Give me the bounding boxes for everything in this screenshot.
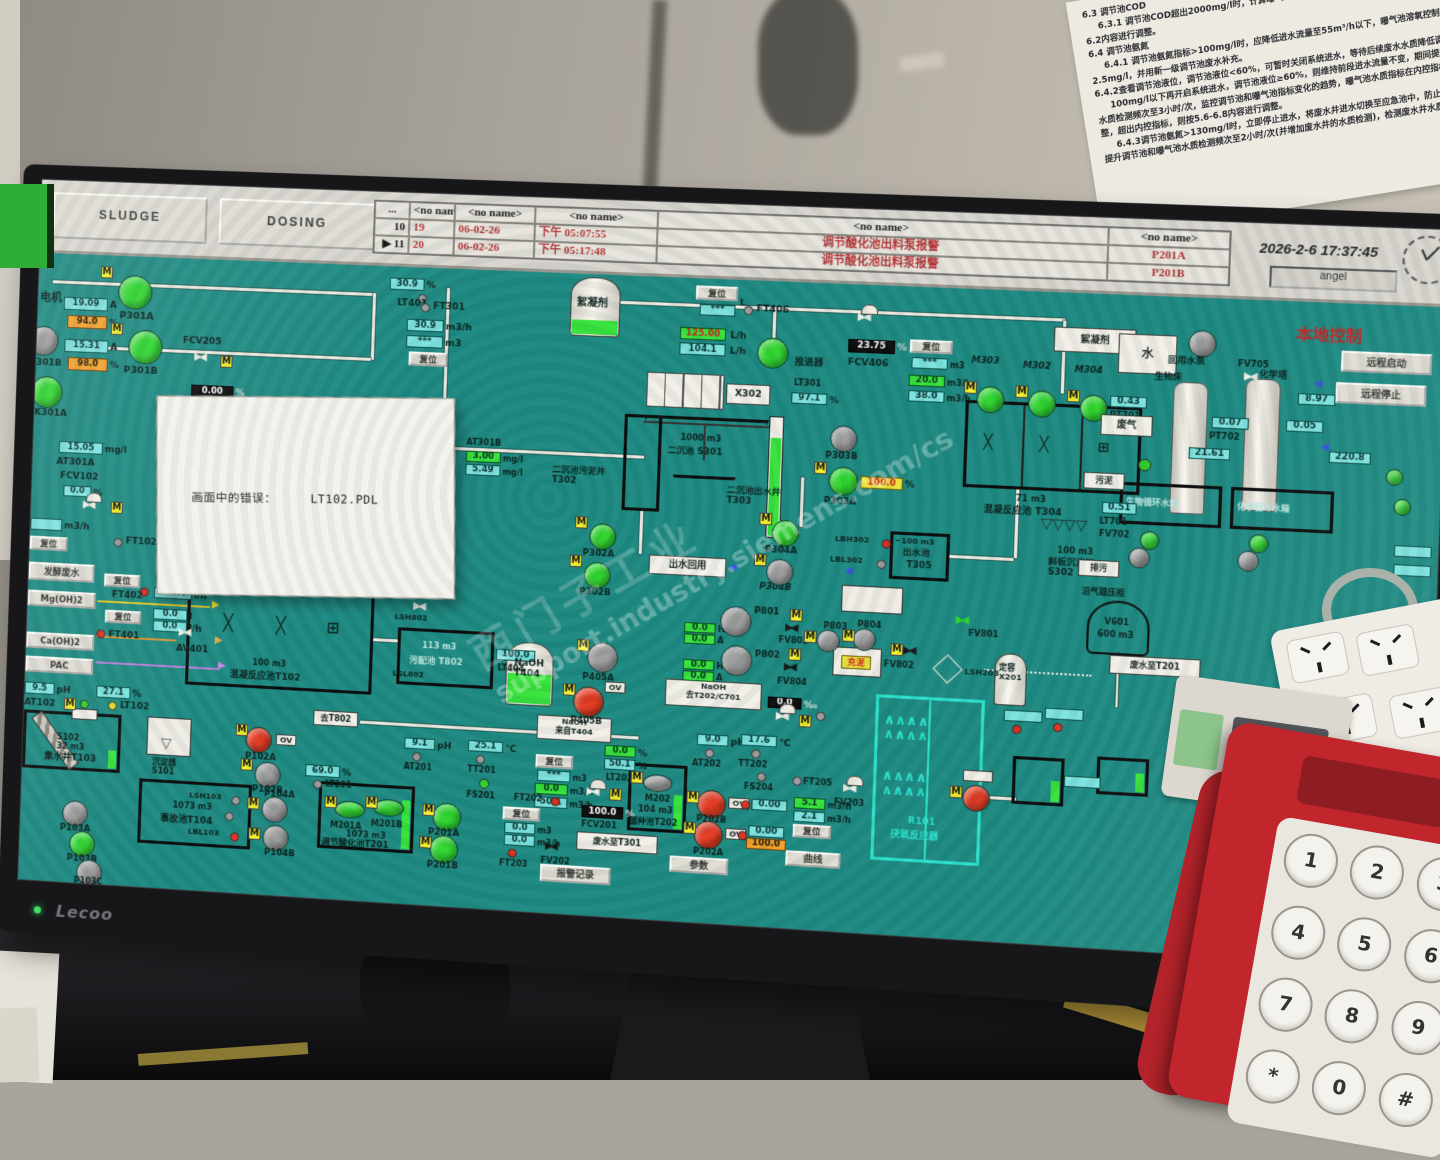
lbl-FV705: FV705: [1238, 359, 1269, 370]
lbl-%: %: [905, 480, 915, 491]
lbl-A: A: [717, 636, 724, 646]
vbox-19.09: 19.09: [64, 297, 108, 312]
sludge-label: 污泥: [1083, 472, 1125, 491]
dot: [816, 711, 826, 721]
pump-reuse-water[interactable]: [1188, 330, 1217, 358]
vbox-2.1: 2.1: [793, 810, 825, 823]
lbl-LT201: LT201: [325, 779, 352, 790]
vbox-97.1: 97.1: [791, 392, 827, 405]
lbl-%: %: [897, 343, 907, 354]
alarm-cell[interactable]: 06-02-26: [453, 238, 534, 258]
reset-button[interactable]: 复位: [104, 573, 140, 588]
arr-▶: ▶: [214, 636, 222, 646]
valve-fv804[interactable]: ▶◀: [784, 662, 794, 673]
lbl-K301A: K301A: [34, 408, 67, 420]
lbl-AT301A: AT301A: [56, 457, 94, 469]
mtag[interactable]: M: [64, 698, 76, 711]
alarm-table[interactable]: ...<no nam<no name><no name><no name><no…: [372, 200, 1231, 287]
mtag[interactable]: M: [248, 827, 261, 840]
vlv[interactable]: ▶◀: [776, 711, 786, 722]
mtag[interactable]: M: [236, 724, 249, 737]
pump-p301b[interactable]: [128, 329, 163, 365]
box-充泥: 充泥: [841, 655, 871, 670]
dot: [792, 776, 802, 786]
sludge-button[interactable]: SLUDGE: [52, 192, 208, 244]
ferment-wastewater-label[interactable]: 发酵废水: [28, 562, 94, 583]
valve-fv803[interactable]: ▶◀: [785, 623, 795, 634]
alarm-cell[interactable]: 10: [374, 218, 409, 237]
parameters-button[interactable]: 参数: [669, 855, 728, 875]
vbox-9.1: 9.1: [404, 737, 435, 750]
lbl-%: %: [829, 396, 839, 407]
dot: [113, 538, 122, 547]
lbl-P303B: P303B: [825, 452, 858, 464]
lbl-100 m3: 100 m3: [252, 658, 286, 669]
screen-x302: [646, 372, 725, 410]
lbl-%: %: [110, 361, 119, 372]
arr-◀: ◀: [728, 562, 736, 573]
lbl-P802: P802: [754, 650, 780, 661]
valve-fv202[interactable]: ▶◀: [545, 841, 555, 852]
clock-icon: [1402, 235, 1440, 285]
lbl-FV801: FV801: [968, 629, 999, 640]
sludge-scraper: [841, 585, 904, 615]
lbl-AT301B: AT301B: [466, 437, 501, 448]
alarm-col-header: ...: [375, 201, 410, 220]
lbl-AT202: AT202: [692, 758, 721, 769]
vbox-***: ***: [911, 357, 948, 370]
mtag[interactable]: M: [324, 796, 337, 809]
lbl-AT102: AT102: [24, 697, 55, 709]
lbl-AV401: AV401: [176, 644, 209, 656]
mtag[interactable]: M: [949, 785, 962, 798]
pump[interactable]: [962, 784, 991, 813]
valve-fv705[interactable]: ▶◀: [1244, 372, 1255, 383]
pump-k301a[interactable]: [30, 375, 63, 408]
dot: [751, 749, 761, 759]
pump[interactable]: [1393, 499, 1411, 517]
vbox: [30, 518, 62, 532]
pump-p802[interactable]: [720, 644, 753, 677]
mtag[interactable]: M: [575, 516, 588, 529]
lbl-‰: ‰: [803, 700, 817, 711]
lbl-生物床: 生物床: [1154, 372, 1182, 383]
dot: [108, 701, 117, 711]
lbl-%: %: [342, 768, 352, 779]
dot: [412, 752, 422, 762]
vbox-9.0: 9.0: [697, 734, 729, 747]
curves-button[interactable]: 曲线: [785, 850, 841, 869]
dot: [507, 848, 517, 858]
lbl-M201B: M201B: [371, 819, 403, 830]
vbox-50.1: 50.1: [604, 758, 636, 771]
vbox-0.0: 0.0: [682, 670, 714, 682]
mtag[interactable]: M: [577, 639, 590, 652]
lbl-推进器: 推进器: [795, 357, 824, 369]
lbl-P104B: P104B: [264, 848, 295, 860]
dot: [1053, 723, 1063, 733]
dia: [932, 654, 962, 683]
vbox-30.9: 30.9: [407, 319, 444, 333]
fun-▽▽▽▽: ▽▽▽▽: [1041, 516, 1088, 535]
reset-button[interactable]: 复位: [105, 610, 141, 625]
valve-fv802[interactable]: ▶◀: [903, 646, 913, 657]
valve-fcv205[interactable]: ▶◀: [194, 352, 204, 362]
pump-p304a[interactable]: [771, 519, 799, 547]
lbl-FCV102: FCV102: [60, 471, 99, 483]
phone-key-6: 6: [1400, 925, 1440, 988]
pump-propeller[interactable]: [757, 337, 790, 369]
mtag[interactable]: M: [609, 788, 622, 801]
lbl-LSH802: LSH802: [394, 613, 427, 623]
lbl-m3/h: m3/h: [827, 814, 851, 825]
mgoh2-label[interactable]: Mg(OH)2: [28, 589, 96, 609]
lbl-FV802: FV802: [883, 659, 914, 670]
lbl-混凝反应池 T304: 混凝反应池 T304: [983, 505, 1062, 519]
arr-◀: ◀: [1320, 442, 1329, 453]
lbl-沼气稳压柜: 沼气稳压柜: [1081, 586, 1125, 598]
lbl-%: %: [426, 281, 436, 292]
valve-fv801[interactable]: ▶◀: [955, 615, 965, 626]
phone-key-#: #: [1374, 1069, 1437, 1132]
lbl-TT202: TT202: [738, 759, 768, 770]
pump-p405a[interactable]: [587, 641, 619, 673]
lbl-FCV201: FCV201: [581, 819, 617, 831]
vbox-15.05: 15.05: [59, 441, 103, 455]
pump-p104a[interactable]: [261, 796, 288, 824]
pipe: [949, 555, 1013, 561]
reset-button[interactable]: 复位: [910, 339, 953, 354]
dot: [876, 560, 886, 570]
mtag[interactable]: M: [631, 771, 644, 784]
pump-p801[interactable]: [720, 605, 753, 637]
lbl-TT201: TT201: [467, 764, 496, 775]
pump-p405b[interactable]: [572, 686, 604, 718]
outlet: [1355, 623, 1420, 677]
pump[interactable]: [1128, 547, 1150, 569]
lbl-℃: ℃: [779, 738, 791, 749]
lbl-FT203: FT203: [499, 858, 528, 869]
mtag[interactable]: M: [220, 356, 233, 369]
mtag[interactable]: M: [1015, 385, 1028, 398]
vbox-23.75: 23.75: [848, 339, 895, 354]
biogas-holder-v601: [1086, 599, 1151, 657]
dot: [705, 748, 715, 758]
green-sticker: [0, 184, 54, 268]
lbl-╳: ╳: [223, 614, 233, 633]
mtag[interactable]: M: [804, 630, 817, 643]
vbox-0.07: 0.07: [1211, 417, 1249, 430]
vbox-0.0: 0.0: [684, 622, 716, 634]
vbox-27.1: 27.1: [96, 685, 130, 699]
device-green-label: [1173, 709, 1224, 771]
reset-button[interactable]: 复位: [535, 754, 573, 769]
vbox-69.0: 69.0: [305, 764, 340, 778]
reset-button[interactable]: 复位: [696, 285, 738, 301]
lbl-⊞: ⊞: [1097, 441, 1109, 457]
lbl-113 m3: 113 m3: [422, 641, 457, 652]
lbl-LBL302: LBL302: [830, 555, 863, 566]
vbox-0.00: 0.00: [751, 799, 787, 812]
lbl-m3: m3: [445, 339, 461, 350]
mtag[interactable]: M: [842, 629, 855, 642]
lbl-%: %: [132, 689, 141, 700]
remote-stop-button[interactable]: 远程停止: [1335, 382, 1426, 407]
lbl-600 m3: 600 m3: [1097, 629, 1133, 640]
pump-p301a[interactable]: [118, 275, 153, 310]
mtag[interactable]: M: [686, 791, 699, 804]
lbl-m3/h: m3/h: [827, 801, 851, 812]
arr-▶: ▶: [212, 600, 220, 610]
lbl-l/h: l/h: [189, 624, 202, 635]
mtag[interactable]: M: [814, 461, 827, 474]
alarm-record-button[interactable]: 报警记录: [540, 864, 611, 886]
lbl-FT301: FT301: [433, 302, 465, 314]
arr-◀: ◀: [844, 566, 853, 577]
vbox-8.97: 8.97: [1298, 393, 1336, 406]
lbl-化学塔: 化学塔: [1259, 370, 1287, 381]
pump-k301b[interactable]: [28, 325, 59, 356]
mtag[interactable]: M: [759, 513, 772, 526]
lbl-P301B: P301B: [123, 365, 157, 377]
pump[interactable]: [1237, 550, 1260, 572]
valve-fv203[interactable]: ▶◀: [843, 783, 853, 794]
phone-key-7: 7: [1254, 973, 1317, 1036]
lbl-LT102: LT102: [120, 701, 150, 713]
lbl-FCV406: FCV406: [847, 357, 888, 369]
mtag[interactable]: M: [419, 836, 432, 849]
valve-av701[interactable]: ▶◀: [413, 602, 423, 613]
mtag[interactable]: M: [247, 797, 260, 810]
lbl-P301A: P301A: [119, 311, 154, 323]
mtag[interactable]: M: [799, 715, 812, 728]
arr-◀: ◀: [1314, 379, 1323, 390]
outlet: [1388, 686, 1440, 740]
pump-p302b[interactable]: [583, 561, 611, 589]
pump-p302a[interactable]: [589, 523, 617, 551]
lbl-⊞: ⊞: [326, 619, 339, 637]
vbox-98.0: 98.0: [68, 357, 108, 372]
alarm-cell[interactable]: ▶ 11: [374, 235, 409, 254]
lbl-71 m3: 71 m3: [1016, 494, 1046, 505]
lbl-FV702: FV702: [1099, 529, 1130, 540]
lbl-AT201: AT201: [403, 762, 432, 773]
naoh-to-t202-label: NaOH 去T202/C701: [665, 678, 762, 710]
vbox-5.1: 5.1: [794, 797, 826, 810]
lbl-301B: 301B: [36, 358, 62, 369]
pump-p303a[interactable]: [828, 466, 859, 496]
pump[interactable]: [1385, 469, 1403, 487]
vbox: [1394, 545, 1432, 558]
mtag[interactable]: M: [365, 796, 378, 809]
vbox-100.0: 100.0: [746, 837, 786, 851]
lbl-∧∧∧∧: ∧∧∧∧: [883, 728, 929, 746]
lbl-~100 m3: ~100 m3: [894, 537, 934, 548]
lbl-pH: pH: [56, 685, 70, 696]
alarm-cell[interactable]: 20: [408, 236, 454, 255]
pump-p202a[interactable]: [693, 820, 723, 851]
valve-fcv406[interactable]: ▶◀: [858, 312, 868, 323]
mtag[interactable]: M: [240, 758, 253, 771]
phone-key-3: 3: [1412, 853, 1440, 916]
mtag[interactable]: M: [111, 501, 123, 514]
lbl-二沉池污泥井 T302: 二沉池污泥井 T302: [552, 466, 606, 488]
lbl-m3: m3: [572, 774, 587, 784]
phone-key-2: 2: [1346, 841, 1409, 904]
lbl-FT401: FT401: [108, 630, 139, 642]
lbl-NaOH T404: NaOH T404: [514, 658, 545, 681]
dot: [744, 306, 754, 316]
vbox-0.0: 0.0: [153, 608, 188, 621]
lbl-LSH103: LSH103: [189, 791, 222, 802]
pipe: [371, 293, 376, 360]
vbox: [1045, 708, 1084, 722]
lbl-P201B: P201B: [427, 861, 459, 873]
lbl-l: l: [189, 612, 192, 623]
alarm-cell[interactable]: P201B: [1107, 263, 1229, 285]
valve-av401[interactable]: ▶◀: [178, 628, 188, 639]
caoh2-label[interactable]: Ca(OH)2: [26, 631, 94, 651]
blowdown-label: 排污: [1078, 559, 1120, 578]
vbox-0.43: 0.43: [1110, 396, 1147, 409]
lbl-沉淀器 S101: 沉淀器 S101: [152, 757, 177, 777]
wall-stain: [758, 0, 858, 135]
lbl-mg/l: mg/l: [503, 454, 524, 464]
lbl-mg/l: mg/l: [502, 468, 523, 478]
vbox-104.1: 104.1: [679, 342, 726, 356]
lbl-╳: ╳: [983, 434, 993, 451]
lbl-FT102: FT102: [125, 536, 156, 548]
lbl-m3/h: m3/h: [64, 521, 90, 533]
vbox-100.0: 100.0: [581, 805, 623, 820]
mtag[interactable]: M: [788, 648, 801, 661]
lbl-P302B: P302B: [579, 588, 611, 600]
vbox-5.49: 5.49: [465, 464, 500, 477]
lbl-FS204: FS204: [744, 782, 774, 793]
alarm-cell[interactable]: 19: [409, 219, 455, 238]
lbl-P103C: P103C: [74, 876, 103, 887]
dot: [476, 755, 486, 765]
phone-key-4: 4: [1267, 901, 1330, 964]
lbl-%: %: [638, 749, 648, 760]
vbox-***: ***: [537, 770, 571, 783]
lbl-LSH203: LSH203: [964, 668, 999, 679]
outlet: [1285, 630, 1350, 684]
phone-keypad: 123456789*0#: [1225, 816, 1440, 1159]
pac-label[interactable]: PAC: [25, 655, 93, 675]
lbl-m3: m3: [950, 361, 965, 371]
lbl-絮凝剂: 絮凝剂: [577, 297, 609, 310]
lbl-二沉池出水井 T303: 二沉池出水井 T303: [726, 486, 780, 509]
lbl-P302A: P302A: [582, 549, 614, 561]
reset-button[interactable]: 复位: [503, 806, 541, 821]
vbox-220.8: 220.8: [1329, 451, 1371, 464]
valve-fcv201[interactable]: ▶◀: [586, 787, 596, 798]
error-dialog[interactable]: 画面中的错误： LT102.PDL: [156, 395, 455, 599]
vbox-9.5: 9.5: [25, 681, 55, 695]
alarm-cell[interactable]: 下午 05:17:48: [534, 241, 657, 263]
box-OV: OV: [605, 681, 626, 693]
pipe: [53, 280, 375, 296]
dot: [80, 700, 89, 710]
box-OV: OV: [276, 734, 297, 746]
vbox-20.0: 20.0: [909, 375, 946, 388]
lbl-PT702: PT702: [1209, 431, 1240, 442]
power-led: [34, 906, 41, 913]
vbox-125.00: 125.00: [680, 327, 727, 341]
lbl-FCV205: FCV205: [183, 336, 222, 348]
lbl-m3/h: m3/h: [445, 322, 471, 334]
phone-display: [1296, 755, 1440, 828]
vbox-0.0: 0.0: [504, 834, 535, 847]
remote-start-button[interactable]: 远程启动: [1341, 351, 1432, 376]
lbl-A: A: [110, 343, 117, 354]
to-t301-label: 废水至T301: [576, 831, 658, 854]
mtag[interactable]: M: [563, 683, 576, 696]
error-dialog-value: LT102.PDL: [310, 492, 378, 507]
mtag[interactable]: M: [422, 803, 435, 816]
fun-▽: ▽: [160, 735, 171, 752]
lbl-m3: m3: [537, 826, 552, 836]
lbl-T305: T305: [906, 561, 931, 572]
lbl-LT301: LT301: [794, 378, 822, 389]
reset-button[interactable]: 复位: [30, 536, 68, 552]
lbl-S102 32 m3: S102 32 m3: [56, 732, 84, 752]
reset-button[interactable]: 复位: [793, 824, 832, 840]
lbl-定容 X201: 定容 X201: [999, 663, 1023, 682]
lbl-P405B: P405B: [570, 716, 602, 728]
lbl-L/h: L/h: [730, 346, 747, 357]
pump-p102a[interactable]: [245, 726, 272, 754]
valve-fcv102[interactable]: ▶◀: [83, 500, 93, 510]
dot: [421, 303, 431, 313]
phone-key-9: 9: [1387, 997, 1440, 1060]
pipe: [639, 509, 644, 554]
pump-p303b[interactable]: [830, 425, 859, 453]
lbl-M303: M303: [971, 356, 999, 367]
vbox-***: ***: [406, 335, 443, 349]
pipe: [373, 638, 400, 642]
lbl-M202: M202: [644, 793, 670, 804]
mtag[interactable]: M: [111, 323, 123, 336]
vbox-0.0: 0.0: [604, 745, 636, 758]
phone-key-5: 5: [1333, 913, 1396, 976]
vbox-38.0: 38.0: [908, 390, 945, 403]
mtag[interactable]: M: [754, 553, 767, 566]
vbox-94.0: 94.0: [67, 315, 107, 330]
lbl-出水池: 出水池: [902, 548, 930, 559]
waste-gas-label: 废气: [1100, 414, 1153, 437]
lbl-╳: ╳: [1039, 436, 1049, 453]
local-control-label: 本地控制: [1296, 326, 1363, 347]
lbl-1000 m3: 1000 m3: [680, 433, 721, 444]
mtag[interactable]: M: [964, 381, 977, 394]
dosing-button[interactable]: DOSING: [218, 198, 376, 250]
lbl-P801: P801: [754, 607, 780, 618]
phone-key-0: 0: [1308, 1057, 1371, 1120]
mtag[interactable]: M: [683, 821, 696, 834]
user-input[interactable]: angel: [1269, 266, 1398, 293]
mtag[interactable]: M: [890, 643, 903, 656]
mtag[interactable]: M: [1067, 390, 1080, 403]
reset-button[interactable]: 复位: [408, 351, 447, 367]
lbl-V601: V601: [1104, 617, 1129, 628]
error-dialog-label: 画面中的错误：: [192, 490, 277, 505]
mtag[interactable]: M: [569, 555, 582, 568]
lbl-LBH302: LBH302: [835, 535, 870, 546]
mtag[interactable]: M: [101, 266, 113, 279]
mtag[interactable]: M: [790, 609, 803, 622]
